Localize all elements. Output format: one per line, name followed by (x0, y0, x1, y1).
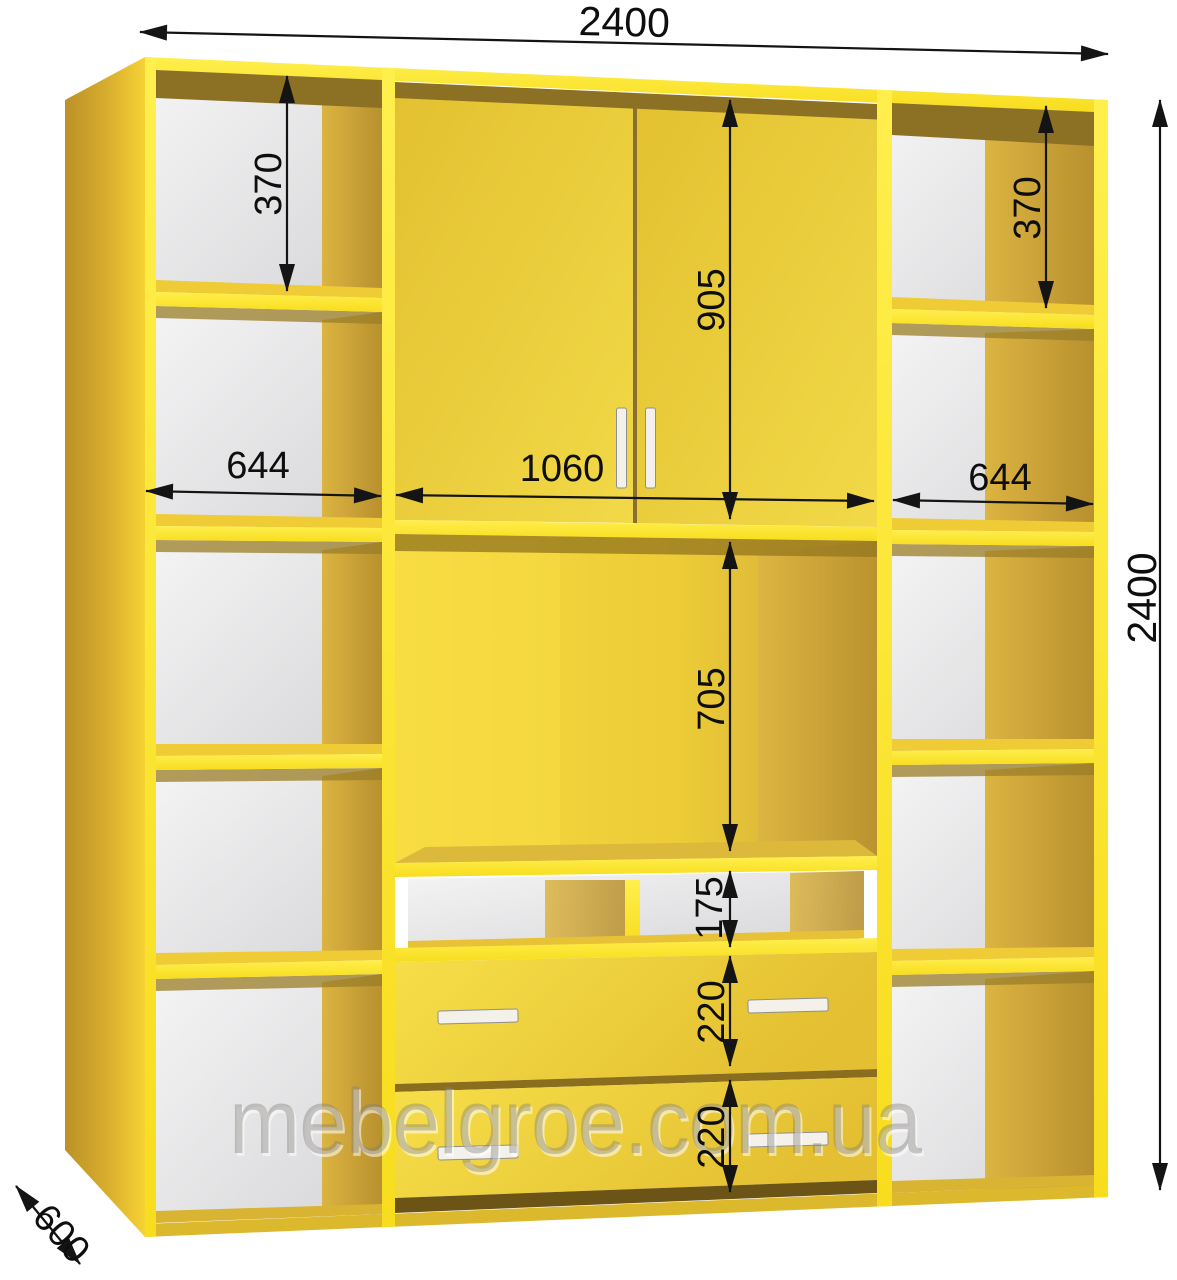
shelf-front (156, 526, 382, 542)
drawer-handle (438, 1009, 518, 1024)
side-panel-left (65, 57, 145, 1237)
dim-label: 220 (691, 980, 733, 1043)
center-section (395, 82, 877, 1213)
shelf-row-175 (395, 871, 877, 962)
compartment-floor (892, 739, 1094, 751)
drawing-canvas: mebelgroe.com.ua mebelgroe.com.ua 2400 2… (0, 0, 1177, 1280)
inner-wall (322, 542, 382, 754)
right-shelf-column (892, 103, 1094, 1193)
dim-label: 644 (968, 457, 1031, 499)
upper-doors (395, 98, 877, 527)
niche-left-wall (395, 534, 560, 863)
dim-label: 370 (1007, 176, 1049, 239)
right-edge-strip (1094, 99, 1108, 1197)
drawer-handle (748, 998, 828, 1013)
door-handle-right (646, 408, 656, 488)
dim-label: 705 (691, 667, 733, 730)
niche-right-wall (758, 541, 877, 856)
dim-label: 2400 (1119, 552, 1165, 643)
ceiling-shadow (156, 540, 382, 554)
wardrobe-unit (65, 57, 1108, 1237)
drawer-upper (395, 952, 877, 1084)
tv-niche (395, 534, 877, 877)
furniture-dimension-drawing: mebelgroe.com.ua mebelgroe.com.ua 2400 2… (0, 0, 1177, 1280)
door-gap (633, 109, 637, 524)
dim-label: 175 (689, 876, 731, 939)
dim-label: 2400 (578, 0, 670, 46)
dim-label: 220 (691, 1105, 733, 1168)
divider-strip-2 (877, 90, 892, 1207)
shelf-front (156, 754, 382, 770)
ceiling-shadow (156, 768, 382, 782)
inner-wall (985, 971, 1094, 1190)
ceiling-shadow (892, 763, 1094, 777)
shelf-front (892, 749, 1094, 765)
door-handle-left (617, 408, 627, 488)
ceiling-shadow (892, 544, 1094, 558)
left-shelf-column (156, 70, 382, 1223)
dim-label: 644 (226, 445, 289, 487)
dim-total-height: 2400 (1119, 100, 1165, 1190)
door-right (637, 109, 877, 527)
divider-strip-1 (382, 68, 395, 1228)
inner-wall (985, 546, 1094, 749)
left-edge-strip (145, 57, 156, 1237)
shelf-front (892, 530, 1094, 546)
compartment-floor (156, 744, 382, 756)
watermark-text: mebelgroe.com.ua (229, 1071, 923, 1173)
inner-wall (322, 768, 382, 960)
inner-wall (985, 763, 1094, 958)
dim-label: 370 (248, 152, 290, 215)
dim-label: 1060 (520, 448, 605, 490)
dim-total-width: 2400 (140, 0, 1108, 54)
dim-label: 905 (691, 268, 733, 331)
watermark: mebelgroe.com.ua mebelgroe.com.ua (229, 1071, 925, 1176)
dim-depth: 600 (16, 1186, 98, 1272)
inner-wall (322, 80, 382, 298)
dim-shelf-row-height: 175 (689, 871, 731, 947)
